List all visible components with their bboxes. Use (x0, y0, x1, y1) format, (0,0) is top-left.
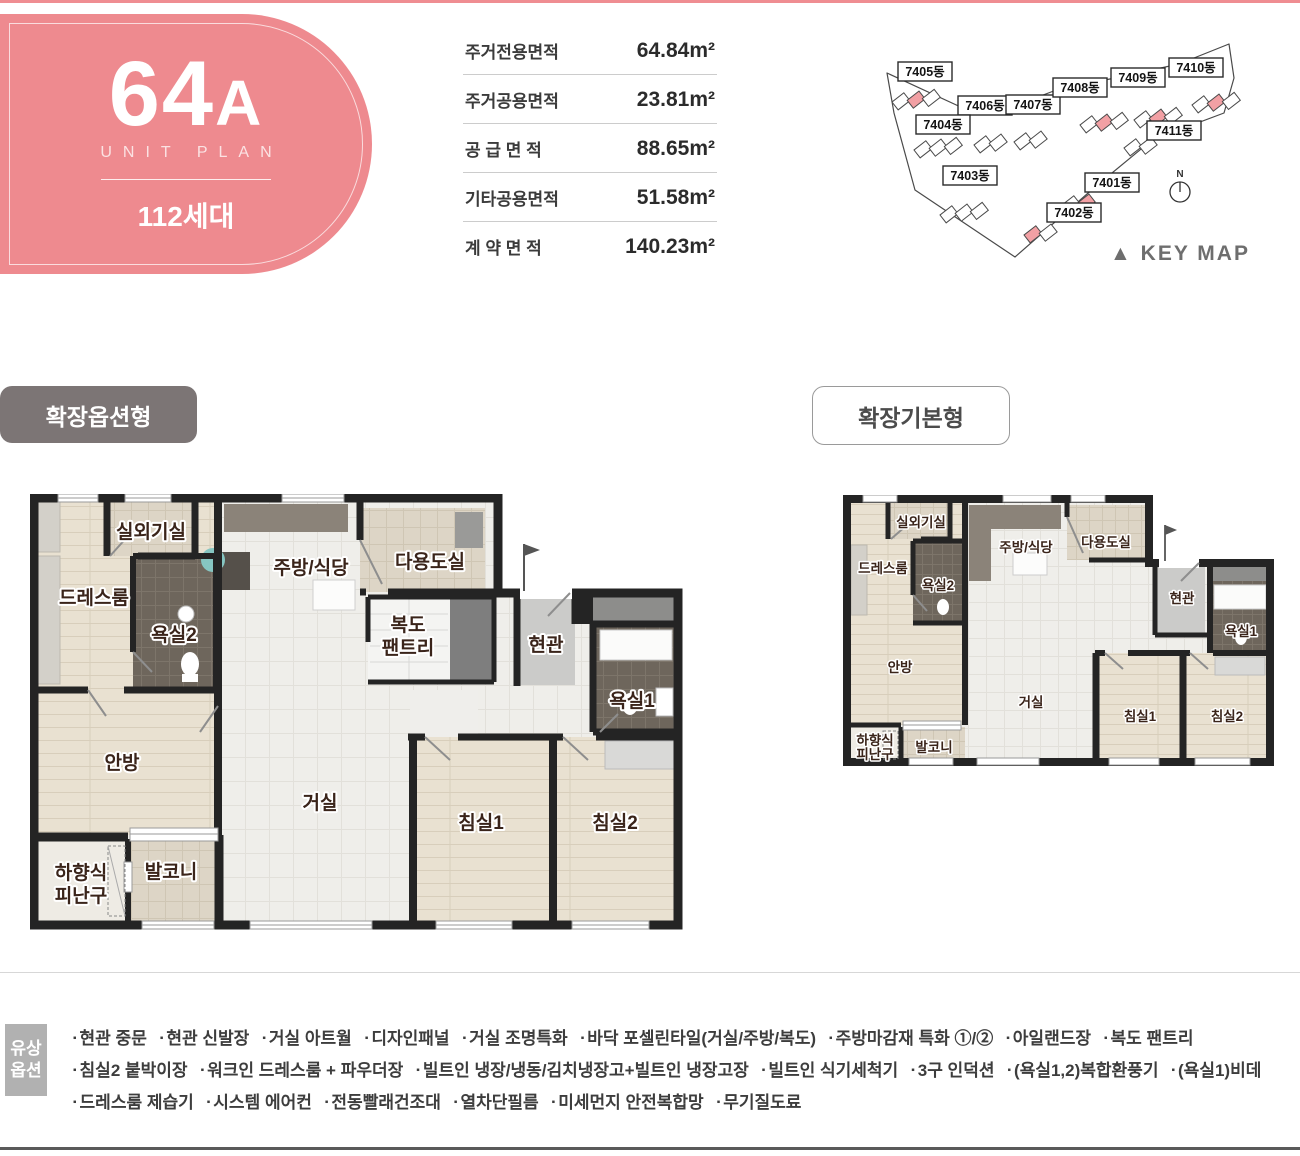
room-label-dress: 드레스룸 (858, 561, 908, 576)
unit-badge: 64A UNIT PLAN 112세대 (0, 14, 372, 274)
room-label-bath2: 욕실2 (151, 624, 197, 646)
key-map: 7405동 7406동 7407동 7404동 7408동 7409동 7410… (862, 30, 1262, 278)
building-shapes (892, 77, 1240, 249)
room-label-utility: 다용도실 (1081, 535, 1131, 550)
room-label-hatch2: 피난구 (55, 885, 107, 907)
svg-text:7408동: 7408동 (1060, 81, 1100, 95)
room-label-dress: 드레스룸 (59, 587, 129, 609)
svg-text:7406동: 7406동 (965, 99, 1005, 113)
section-title-basic: 확장기본형 (812, 386, 1010, 445)
room-label-living: 거실 (303, 792, 338, 814)
keymap-caption: ▲ KEY MAP (1110, 242, 1250, 265)
paid-options-badge: 유상 옵션 (5, 1024, 47, 1096)
room-label-bed1: 침실1 (458, 812, 504, 834)
north-compass-icon: N (1170, 169, 1190, 202)
unit-plan-page: 64A UNIT PLAN 112세대 주거전용면적 64.84m² 주거공용면… (0, 0, 1300, 1156)
floorplan-option: 실외기실 드레스룸 욕실2 주방/식당 다용도실 복도 팬트리 현관 욕실1 안… (30, 494, 700, 931)
room-label-bath1: 욕실1 (609, 690, 655, 712)
building-labels: 7405동 7406동 7407동 7404동 7408동 7409동 7410… (898, 58, 1223, 222)
room-label-outdoor: 실외기실 (116, 521, 186, 543)
room-label-pantry1: 복도 (391, 614, 426, 636)
room-label-master: 안방 (105, 752, 140, 774)
section-title-option: 확장옵션형 (0, 386, 197, 443)
svg-text:7405동: 7405동 (905, 65, 945, 79)
area-row: 기타공용면적 51.58m² (463, 173, 717, 222)
room-label-pantry2: 팬트리 (382, 637, 434, 659)
section-divider (0, 972, 1300, 973)
room-label-master: 안방 (888, 659, 913, 675)
options-line-2: ▪침실2 붙박이장 ▪워크인 드레스룸 + 파우더장 ▪빌트인 냉장/냉동/김치… (73, 1052, 1298, 1084)
unit-code: 64A (109, 53, 264, 136)
bottom-rule (0, 1147, 1300, 1150)
entry-flag-icon (1165, 525, 1177, 535)
entry-flag-icon (524, 544, 540, 556)
floorplan-basic: 실외기실 드레스룸 욕실2 주방/식당 다용도실 현관 욕실1 안방 거실 침실… (843, 495, 1279, 787)
top-accent-line (0, 0, 1300, 3)
room-label-bed1: 침실1 (1124, 709, 1157, 724)
room-label-kitchen: 주방/식당 (999, 539, 1053, 555)
paid-options-list: ▪현관 중문 ▪현관 신발장 ▪거실 아트월 ▪디자인패널 ▪거실 조명특화 ▪… (73, 1020, 1298, 1116)
room-label-balcony: 발코니 (915, 739, 952, 755)
room-label-bath1: 욕실1 (1225, 624, 1258, 639)
area-row: 주거전용면적 64.84m² (463, 26, 717, 75)
room-label-outdoor: 실외기실 (896, 514, 946, 530)
unit-plan-subtitle: UNIT PLAN (89, 144, 282, 162)
room-label-entry: 현관 (1170, 590, 1195, 606)
svg-text:7403동: 7403동 (950, 169, 990, 183)
room-label-hatch2: 피난구 (856, 746, 893, 762)
room-label-balcony: 발코니 (145, 861, 197, 883)
households-count: 112세대 (138, 195, 235, 235)
badge-divider (101, 179, 271, 180)
area-row: 주거공용면적 23.81m² (463, 75, 717, 124)
options-line-3: ▪드레스룸 제습기 ▪시스템 에어컨 ▪전동빨래건조대 ▪열차단필름 ▪미세먼지… (73, 1084, 1298, 1116)
svg-text:7402동: 7402동 (1054, 206, 1094, 220)
room-label-bath2: 욕실2 (922, 578, 954, 593)
room-label-hatch1: 하향식 (856, 732, 893, 748)
svg-text:7404동: 7404동 (923, 118, 963, 132)
area-table: 주거전용면적 64.84m² 주거공용면적 23.81m² 공 급 면 적 88… (463, 26, 717, 270)
room-label-bed2: 침실2 (592, 812, 638, 834)
wall-chunk (575, 593, 593, 624)
room-label-bed2: 침실2 (1211, 709, 1243, 724)
room-label-hatch1: 하향식 (55, 862, 107, 884)
svg-text:7407동: 7407동 (1013, 98, 1053, 112)
svg-text:7411동: 7411동 (1155, 124, 1194, 138)
options-line-1: ▪현관 중문 ▪현관 신발장 ▪거실 아트월 ▪디자인패널 ▪거실 조명특화 ▪… (73, 1020, 1298, 1052)
svg-text:N: N (1176, 169, 1183, 180)
room-label-entry: 현관 (529, 634, 564, 656)
room-label-kitchen: 주방/식당 (273, 557, 349, 579)
svg-text:7409동: 7409동 (1118, 71, 1158, 85)
room-label-utility: 다용도실 (395, 551, 465, 573)
svg-text:7401동: 7401동 (1092, 176, 1132, 190)
room-label-living: 거실 (1019, 695, 1044, 710)
area-row: 계 약 면 적 140.23m² (463, 222, 717, 270)
area-row: 공 급 면 적 88.65m² (463, 124, 717, 173)
svg-text:7410동: 7410동 (1176, 61, 1216, 75)
